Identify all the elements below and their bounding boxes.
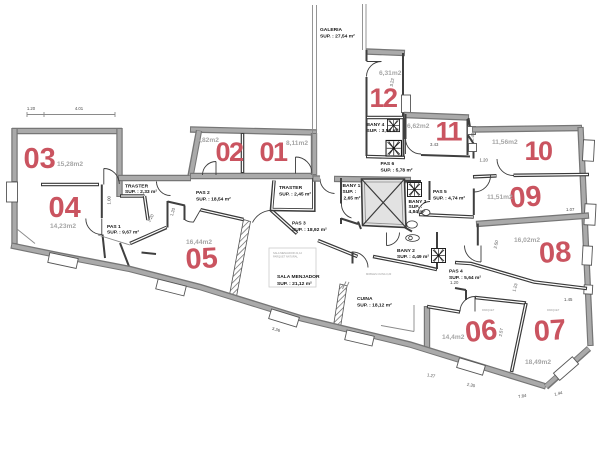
svg-text:1.20: 1.20 bbox=[27, 106, 36, 111]
svg-text:SUP. : 3,56 m²: SUP. : 3,56 m² bbox=[367, 128, 399, 134]
svg-text:2,65 m²: 2,65 m² bbox=[344, 196, 361, 202]
svg-text:1.07: 1.07 bbox=[566, 207, 575, 212]
svg-text:SUP. : 21,12 m²: SUP. : 21,12 m² bbox=[277, 281, 312, 287]
svg-text:18,49m2: 18,49m2 bbox=[525, 359, 551, 366]
svg-text:4.01: 4.01 bbox=[75, 106, 84, 111]
svg-text:1.20: 1.20 bbox=[480, 158, 489, 163]
svg-text:15,28m2: 15,28m2 bbox=[57, 161, 83, 168]
svg-text:SUP. : 2,45 m²: SUP. : 2,45 m² bbox=[279, 192, 311, 198]
svg-text:08: 08 bbox=[538, 236, 572, 270]
svg-text:GALERIA: GALERIA bbox=[320, 27, 342, 33]
svg-text:11,51m2: 11,51m2 bbox=[487, 194, 513, 201]
svg-text:01: 01 bbox=[260, 137, 289, 167]
svg-text:SUP. : 18,54 m²: SUP. : 18,54 m² bbox=[196, 197, 231, 203]
svg-text:TRASTER: TRASTER bbox=[125, 184, 149, 190]
svg-text:6,31m2: 6,31m2 bbox=[379, 70, 402, 77]
svg-text:TRASTER: TRASTER bbox=[279, 185, 303, 191]
svg-text:SUP. : 9,67 m²: SUP. : 9,67 m² bbox=[107, 230, 139, 236]
svg-text:PAS 5: PAS 5 bbox=[433, 189, 447, 195]
svg-text:SUP. : 18,12 m²: SUP. : 18,12 m² bbox=[357, 303, 392, 309]
svg-text:8,11m2: 8,11m2 bbox=[286, 140, 308, 147]
svg-text:05: 05 bbox=[185, 242, 219, 276]
svg-text:SUP. : 27,54 m²: SUP. : 27,54 m² bbox=[320, 34, 355, 40]
svg-text:07: 07 bbox=[533, 314, 567, 348]
svg-text:10: 10 bbox=[525, 136, 553, 166]
svg-text:SUP. : 18,92 m²: SUP. : 18,92 m² bbox=[292, 227, 327, 233]
svg-text:BANY 2: BANY 2 bbox=[397, 248, 415, 254]
svg-text:SUP. : 4,74 m²: SUP. : 4,74 m² bbox=[433, 196, 465, 202]
svg-text:06: 06 bbox=[464, 314, 499, 349]
svg-text:11: 11 bbox=[436, 117, 463, 147]
svg-text:11,56m2: 11,56m2 bbox=[492, 139, 518, 146]
svg-text:3.43: 3.43 bbox=[430, 142, 439, 147]
svg-text:1.20: 1.20 bbox=[450, 280, 459, 285]
svg-text:1.45: 1.45 bbox=[564, 297, 573, 302]
svg-text:PAS 4: PAS 4 bbox=[449, 269, 463, 275]
svg-text:09: 09 bbox=[508, 180, 542, 214]
svg-text:6,82m2: 6,82m2 bbox=[197, 137, 220, 144]
svg-text:03: 03 bbox=[24, 143, 56, 175]
svg-text:14,23m2: 14,23m2 bbox=[50, 223, 76, 230]
svg-text:SUP. : 2,33 m²: SUP. : 2,33 m² bbox=[125, 189, 157, 195]
svg-text:SUP. : 5,78 m²: SUP. : 5,78 m² bbox=[381, 168, 413, 174]
svg-text:02: 02 bbox=[216, 137, 244, 167]
svg-text:MOBLES CUINA 3,20: MOBLES CUINA 3,20 bbox=[366, 272, 392, 276]
svg-text:14,4m2: 14,4m2 bbox=[442, 334, 465, 341]
svg-text:SALA MENJADOR: SALA MENJADOR bbox=[277, 274, 320, 280]
svg-text:16,44m2: 16,44m2 bbox=[186, 239, 212, 246]
svg-text:PARQUET NATURAL: PARQUET NATURAL bbox=[273, 255, 298, 259]
svg-text:SUP. : 4,49 m²: SUP. : 4,49 m² bbox=[397, 254, 429, 260]
svg-text:PAS 6: PAS 6 bbox=[381, 161, 395, 167]
svg-text:PARQUET: PARQUET bbox=[547, 308, 560, 312]
svg-text:PARQUET: PARQUET bbox=[482, 308, 495, 312]
svg-text:1.00: 1.00 bbox=[107, 196, 112, 205]
svg-text:PAS 3: PAS 3 bbox=[292, 221, 306, 227]
svg-text:PAS 2: PAS 2 bbox=[196, 190, 210, 196]
svg-text:PAS 1: PAS 1 bbox=[107, 224, 121, 230]
svg-text:BANY 1: BANY 1 bbox=[343, 183, 361, 189]
svg-text:6,62m2: 6,62m2 bbox=[407, 123, 430, 130]
svg-text:SUP. :: SUP. : bbox=[343, 189, 357, 195]
svg-text:SALA MENJADOR 21,12: SALA MENJADOR 21,12 bbox=[273, 251, 303, 255]
svg-text:04: 04 bbox=[49, 192, 81, 224]
svg-text:16,02m2: 16,02m2 bbox=[514, 237, 540, 244]
svg-text:CUINA: CUINA bbox=[357, 296, 373, 302]
svg-text:BANY 4: BANY 4 bbox=[367, 122, 385, 128]
svg-text:4,84 m²: 4,84 m² bbox=[409, 209, 426, 215]
